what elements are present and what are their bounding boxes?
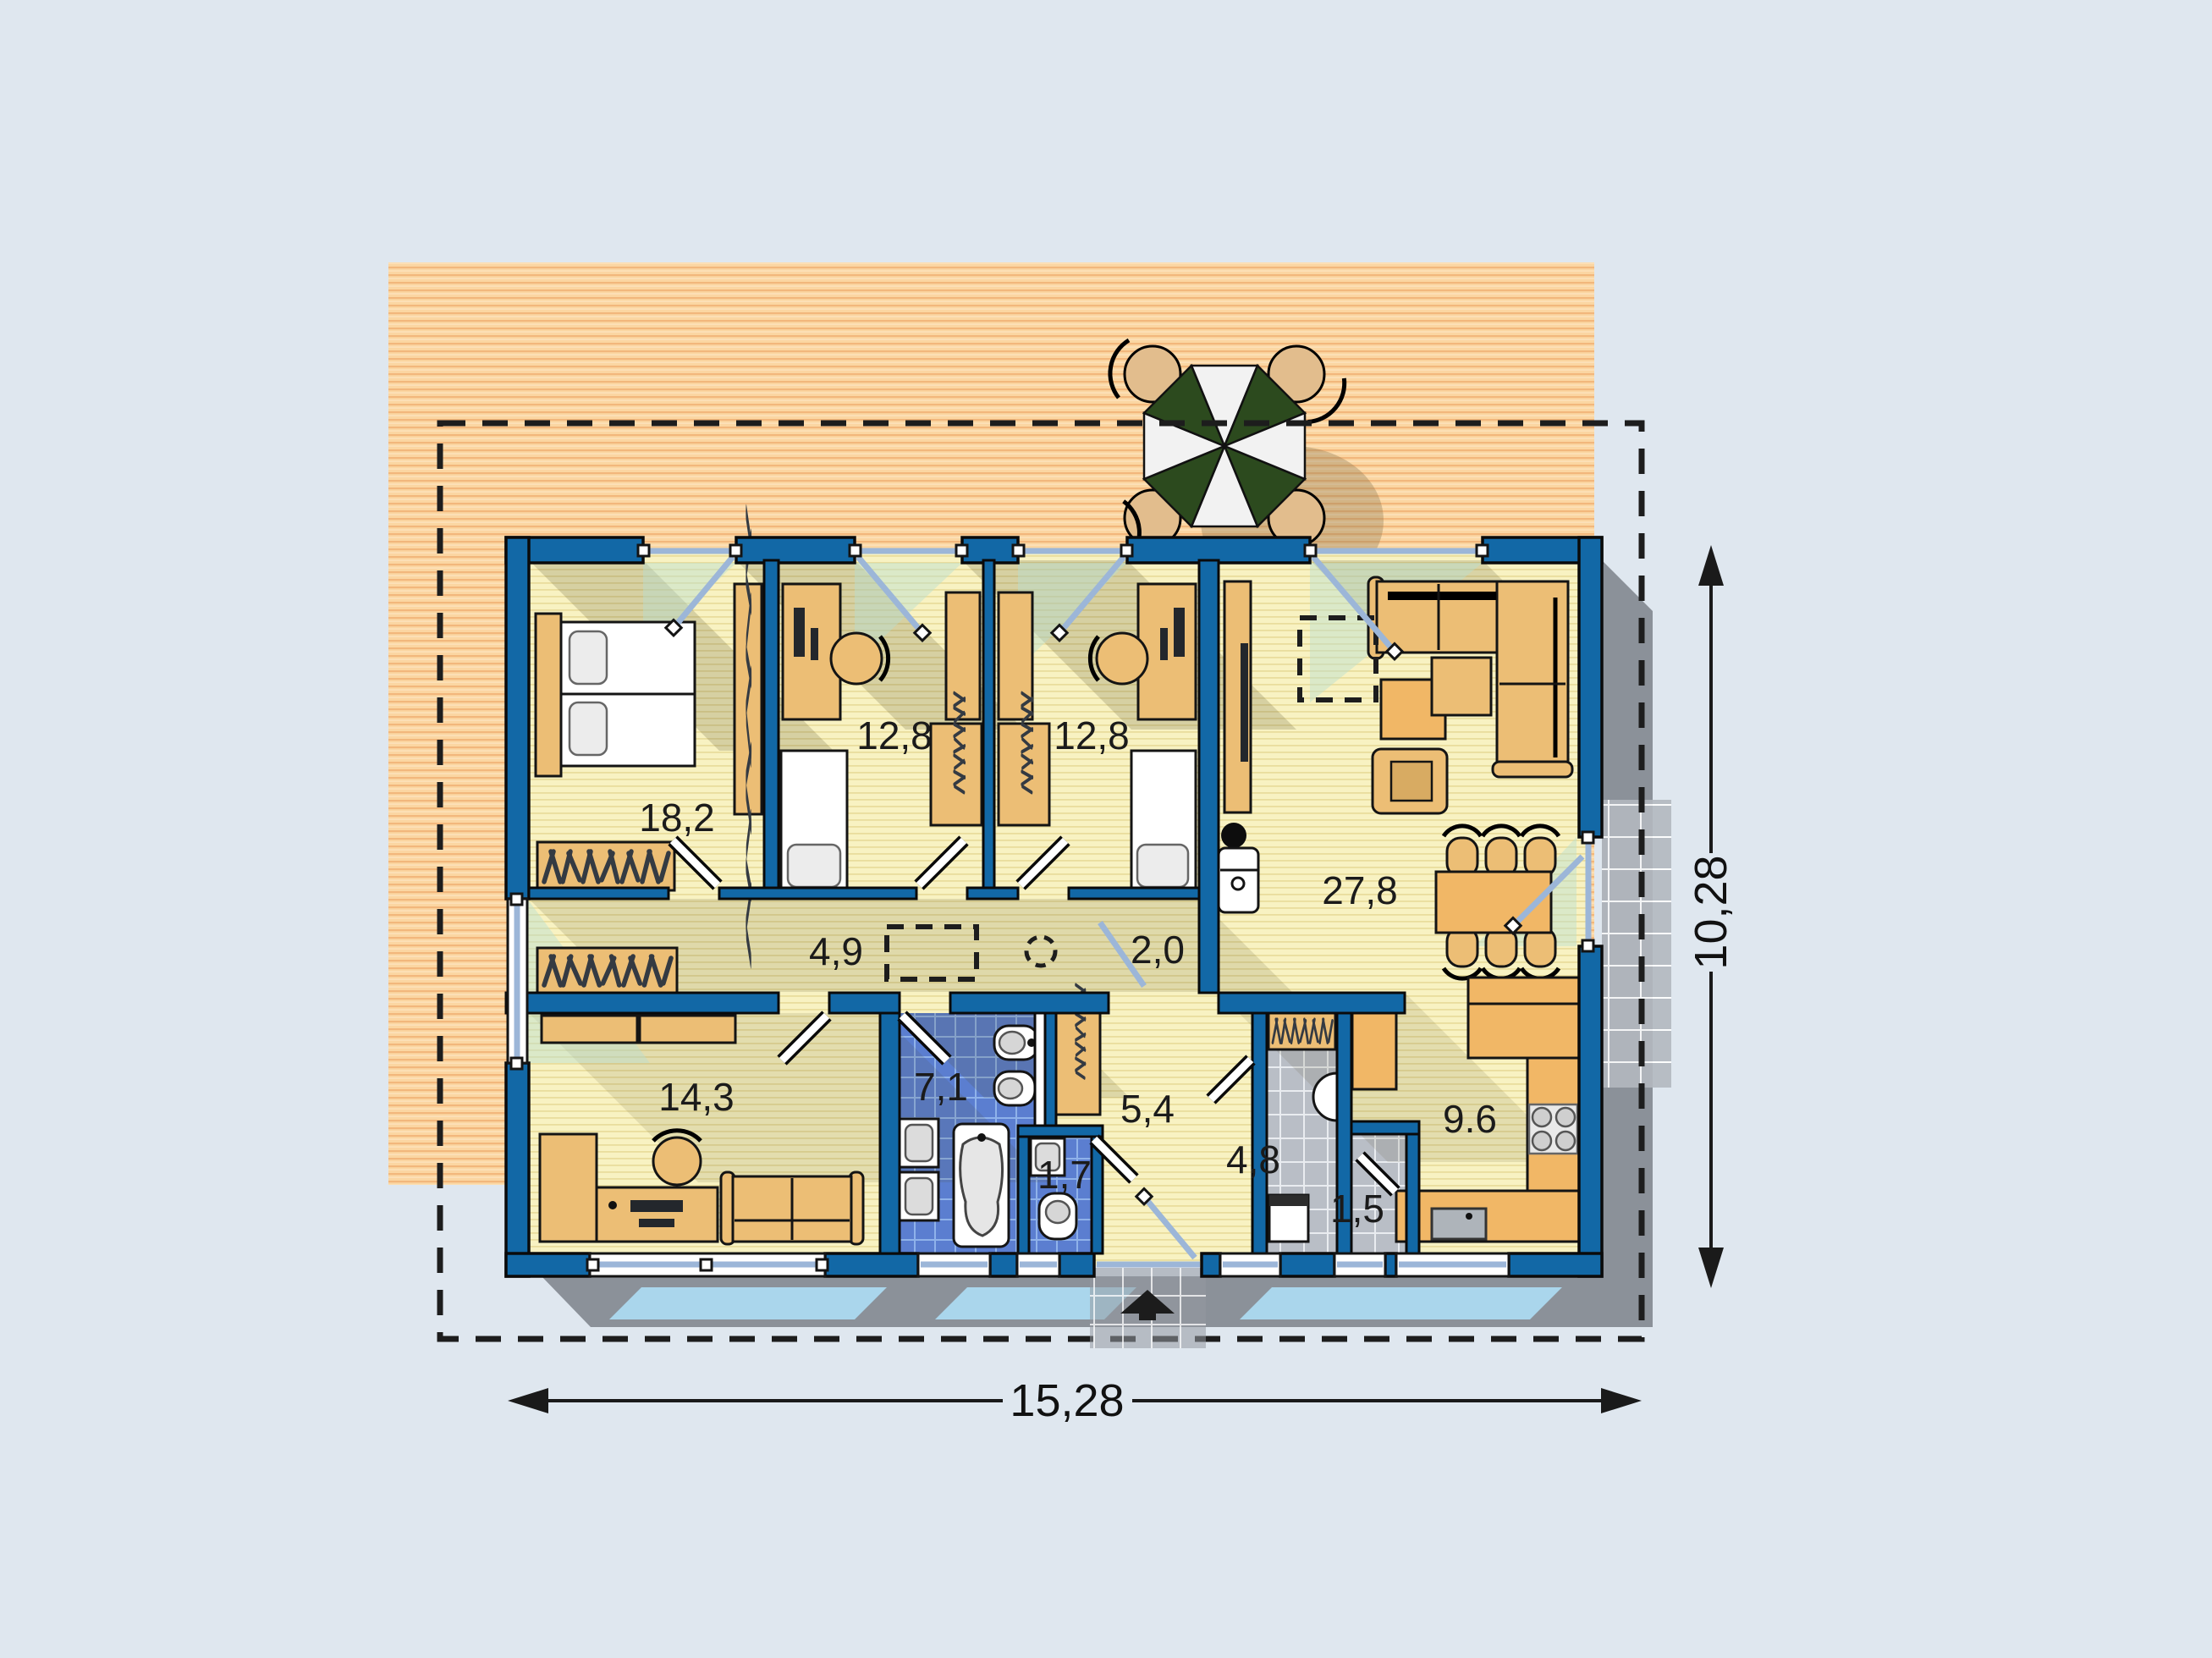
room-label-kids-room-1: 12,8 [856, 713, 933, 757]
room-label-hall-passage: 2,0 [1131, 928, 1185, 972]
floor-plan-drawing: 18,2 12,8 12,8 27,8 4,9 2,0 14,3 7,1 1,7… [0, 0, 2212, 1658]
room-label-entrance-hall: 5,4 [1120, 1087, 1175, 1131]
window [1396, 1253, 1509, 1276]
room-label-bathroom: 7,1 [914, 1065, 968, 1109]
dimension-height-label: 10,28 [1686, 855, 1736, 969]
window [1017, 1253, 1059, 1276]
window-reflections [609, 1287, 1562, 1319]
room-label-pantry: 1,5 [1330, 1187, 1384, 1231]
window [587, 1253, 828, 1276]
window [918, 1253, 990, 1276]
floor-plan-page: 18,2 12,8 12,8 27,8 4,9 2,0 14,3 7,1 1,7… [0, 0, 2212, 1658]
room-label-kids-room-2: 12,8 [1054, 713, 1130, 757]
room-label-wc: 1,7 [1037, 1153, 1092, 1197]
room-label-hallway: 4,9 [809, 929, 863, 973]
window [1334, 1253, 1385, 1276]
room-label-living-room: 27,8 [1322, 868, 1398, 912]
window [508, 894, 527, 1069]
side-terrace [1602, 800, 1671, 1088]
house: 18,2 12,8 12,8 27,8 4,9 2,0 14,3 7,1 1,7… [506, 513, 1602, 1276]
entrance-porch [1090, 1267, 1206, 1348]
window [1220, 1253, 1280, 1276]
room-label-bedroom: 18,2 [639, 796, 715, 840]
room-label-study: 14,3 [658, 1075, 735, 1119]
dimension-width-label: 15,28 [1010, 1375, 1124, 1426]
room-label-utility: 4,8 [1226, 1137, 1280, 1182]
room-label-kitchen: 9.6 [1443, 1097, 1497, 1141]
hallway-wardrobe [537, 948, 677, 993]
